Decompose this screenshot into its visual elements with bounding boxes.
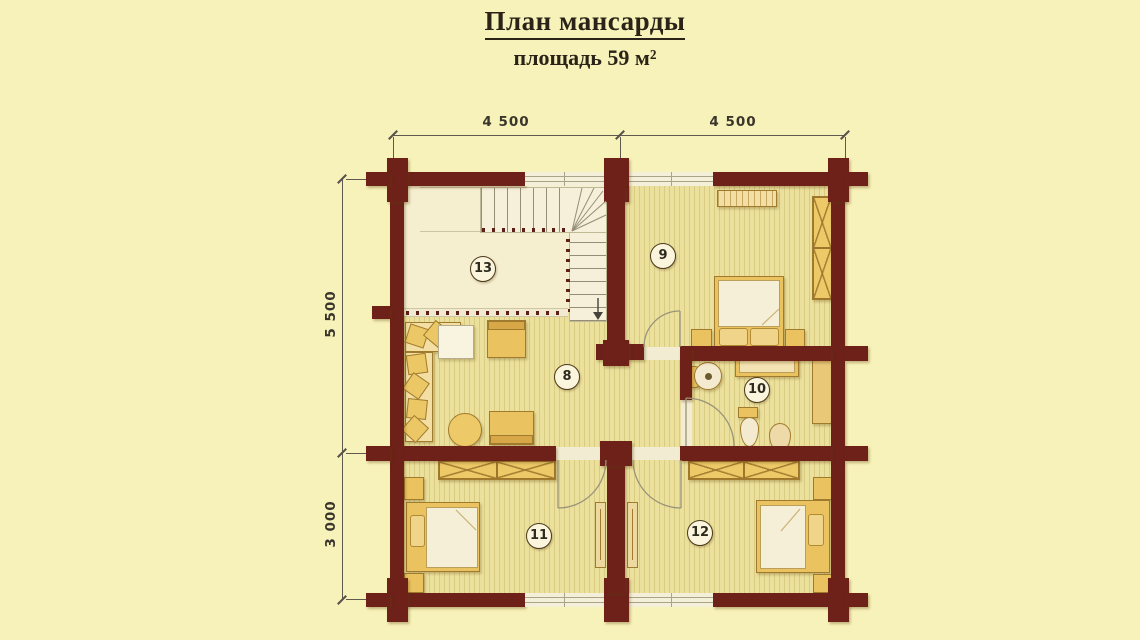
log-end-stub [845, 593, 868, 607]
door-threshold [681, 398, 692, 446]
side-table [438, 325, 474, 359]
stair-upper-flight [480, 187, 570, 233]
wall-bedroom-bath [680, 346, 831, 361]
wardrobe [812, 196, 833, 300]
drain-icon [705, 373, 712, 380]
armchair-back [490, 435, 533, 444]
wardrobe-door-icon [439, 461, 497, 479]
log-end-post [387, 578, 408, 622]
armchair [487, 320, 526, 358]
log-end-stub [845, 346, 868, 361]
window [525, 172, 604, 186]
page-subtitle: площадь 59 м² [285, 45, 885, 71]
railing-posts [406, 311, 564, 315]
bathtub-basin [739, 360, 795, 373]
bed-double [756, 500, 830, 573]
bed-mattress [760, 505, 806, 569]
bed-pillow [750, 328, 779, 346]
wall-bottom [390, 593, 525, 607]
window [629, 593, 713, 607]
room-label-12: 12 [687, 520, 713, 546]
wall-interior-horizontal [404, 446, 556, 461]
stair-balustrade [482, 228, 570, 232]
wall-bathroom-left [680, 346, 692, 400]
bed-mattress [718, 280, 780, 327]
log-end-post [387, 158, 408, 202]
door-threshold [632, 447, 680, 460]
page-title: План мансарды [485, 6, 686, 40]
wall-bottom [713, 593, 845, 607]
stair-projection-line [420, 187, 482, 188]
wall-left [390, 172, 404, 607]
log-end-post [600, 441, 632, 466]
wardrobe-door-icon [497, 461, 555, 479]
log-end-stub [845, 172, 868, 186]
dimension-label-top-right: 4 500 [693, 114, 773, 130]
log-end-stub [366, 446, 390, 461]
bed-double [406, 502, 480, 572]
wardrobe-door-icon [744, 461, 799, 479]
log-end-stub [372, 306, 390, 319]
room-label-10: 10 [744, 377, 770, 403]
log-end-stub [366, 172, 390, 186]
log-end-stub [366, 593, 390, 607]
bed-pillow [719, 328, 748, 346]
wall-interior-horizontal [680, 446, 831, 461]
wall-interior-central-upper [607, 186, 625, 360]
wardrobe [688, 460, 800, 480]
wardrobe-door-icon [689, 461, 744, 479]
wardrobe [438, 460, 556, 480]
room-label-8: 8 [554, 364, 580, 390]
window [525, 593, 604, 607]
dimension-label-left-lower: 3 000 [323, 494, 339, 554]
door-threshold [644, 347, 680, 360]
dimension-line-left [342, 179, 343, 600]
radiator [595, 502, 606, 568]
wall-right [831, 172, 845, 607]
page-title-block: План мансарды площадь 59 м² [285, 6, 885, 71]
radiator [627, 502, 638, 568]
nightstand [404, 477, 424, 500]
bed-pillow [410, 515, 425, 547]
stair-winder [569, 187, 607, 233]
room-label-13: 13 [470, 256, 496, 282]
shower-cabinet [812, 357, 833, 424]
dimension-label-top-left: 4 500 [466, 114, 546, 130]
sofa-cushion [406, 353, 429, 376]
room-label-11: 11 [526, 523, 552, 549]
armchair-back [488, 321, 525, 330]
dimension-label-left-upper: 5 500 [323, 284, 339, 344]
stair-projection-line [420, 231, 482, 232]
window [629, 172, 713, 186]
log-end-post [603, 340, 629, 366]
stair-balustrade [566, 234, 570, 312]
washbasin-icon [694, 362, 722, 390]
log-end-stub [845, 446, 868, 461]
floor-plan-page: План мансарды площадь 59 м² 4 500 4 500 … [0, 0, 1140, 640]
bed-mattress [426, 507, 478, 568]
coffee-table [448, 413, 482, 447]
shelf-under-window [717, 190, 777, 207]
wall-top [713, 172, 845, 186]
gallery-railing [404, 308, 568, 317]
wardrobe-door-icon [813, 197, 832, 248]
room-label-9: 9 [650, 243, 676, 269]
wall-interior-central-lower [607, 446, 625, 593]
stair-lower-flight [569, 232, 607, 322]
bed-double [714, 276, 784, 350]
bed-pillow [808, 514, 824, 546]
wardrobe-door-icon [813, 248, 832, 299]
nightstand [813, 477, 832, 500]
armchair [489, 411, 534, 445]
wall-top [390, 172, 525, 186]
